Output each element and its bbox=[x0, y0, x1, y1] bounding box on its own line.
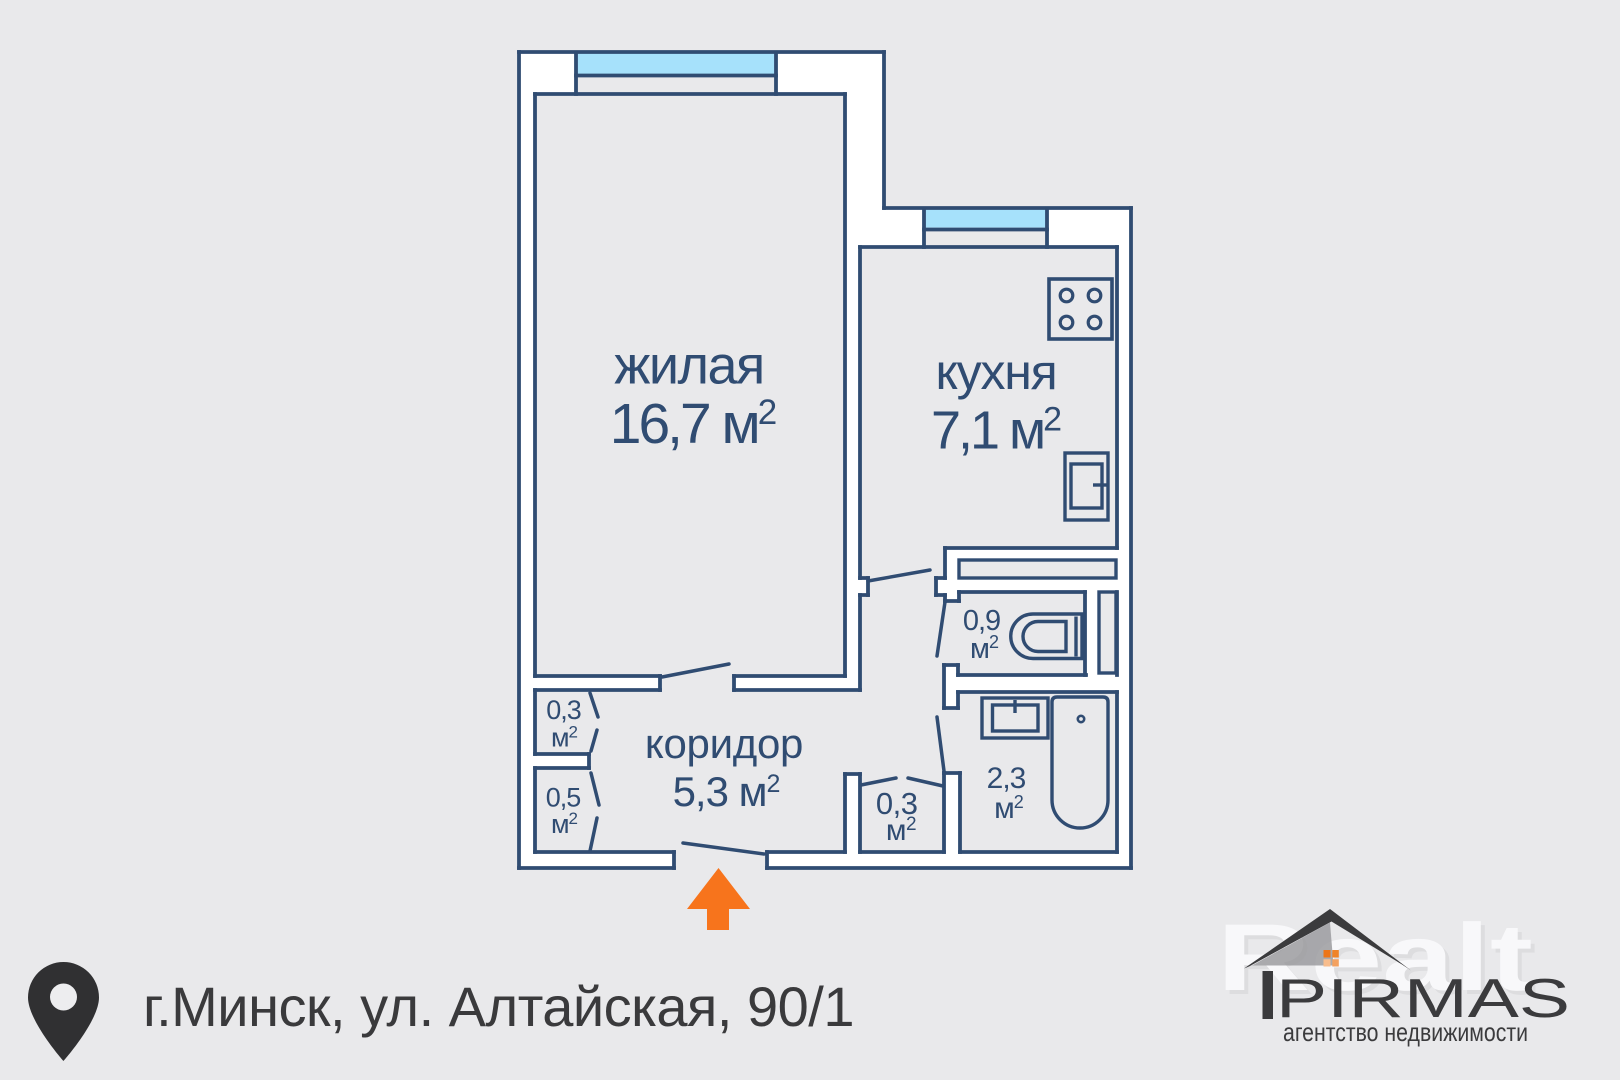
svg-text:кухня: кухня bbox=[935, 344, 1056, 400]
svg-text:г.Минск, ул. Алтайская, 90/1: г.Минск, ул. Алтайская, 90/1 bbox=[143, 975, 854, 1038]
svg-text:7,1 м2: 7,1 м2 bbox=[931, 401, 1061, 461]
svg-text:5,3 м2: 5,3 м2 bbox=[673, 768, 780, 815]
svg-text:0,5: 0,5 bbox=[546, 783, 581, 813]
svg-text:2,3: 2,3 bbox=[987, 762, 1026, 795]
svg-text:жилая: жилая bbox=[614, 336, 764, 396]
svg-text:коридор: коридор bbox=[645, 720, 803, 767]
svg-text:агентство недвижимости: агентство недвижимости bbox=[1283, 1017, 1528, 1047]
svg-text:16,7 м2: 16,7 м2 bbox=[610, 392, 776, 456]
svg-text:0,3: 0,3 bbox=[546, 695, 581, 725]
